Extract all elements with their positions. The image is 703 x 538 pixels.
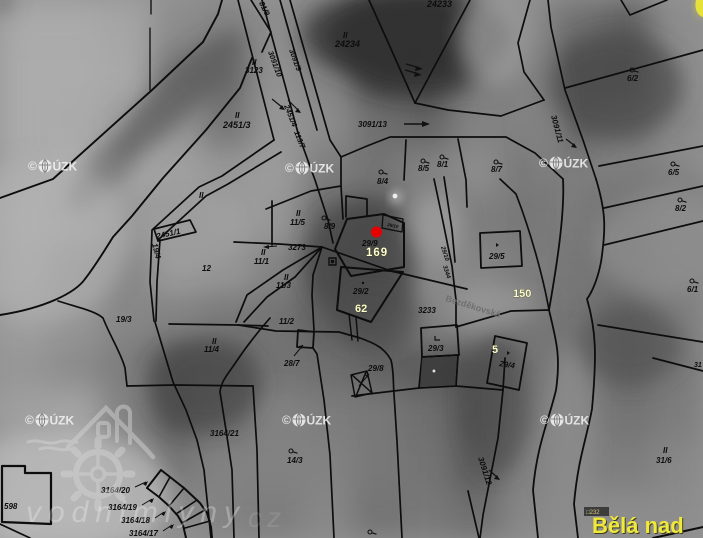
svg-text:19/3: 19/3 (116, 315, 132, 324)
svg-text:29/2: 29/2 (352, 287, 369, 296)
svg-text:11/3: 11/3 (276, 281, 292, 290)
svg-text:II: II (235, 111, 240, 120)
svg-text:8/7: 8/7 (491, 165, 503, 174)
svg-text:II: II (284, 273, 289, 282)
svg-text:3091/13: 3091/13 (358, 120, 387, 129)
svg-text:6/2: 6/2 (627, 74, 639, 83)
svg-text:11/4: 11/4 (204, 345, 220, 354)
svg-text:24233: 24233 (426, 0, 452, 9)
svg-text:vodnimlyny: vodnimlyny (26, 496, 246, 529)
svg-text:3164/21: 3164/21 (210, 429, 239, 438)
svg-text:8/9: 8/9 (324, 222, 336, 231)
svg-text:6/1: 6/1 (687, 285, 699, 294)
svg-text:11/2: 11/2 (279, 317, 295, 326)
svg-text:II: II (212, 337, 217, 346)
svg-text:29/5: 29/5 (488, 252, 505, 261)
svg-text:24234: 24234 (334, 39, 360, 49)
svg-text:3164/17: 3164/17 (129, 529, 158, 538)
svg-text:62: 62 (355, 303, 367, 315)
svg-text:6/5: 6/5 (668, 168, 680, 177)
svg-text:8/2: 8/2 (675, 204, 687, 213)
svg-text:II: II (252, 58, 257, 67)
svg-text:3233: 3233 (418, 306, 436, 315)
svg-text:5: 5 (492, 344, 498, 356)
svg-text:cz: cz (248, 502, 286, 533)
svg-text:8/1: 8/1 (437, 160, 449, 169)
svg-text:28/7: 28/7 (283, 359, 300, 368)
svg-text:II: II (199, 191, 204, 200)
svg-text:11/1: 11/1 (254, 257, 270, 266)
svg-text:Bělá nad: Bělá nad (592, 513, 684, 538)
svg-text:169: 169 (366, 247, 388, 259)
svg-text:31: 31 (694, 362, 702, 369)
svg-text:II: II (261, 248, 266, 257)
svg-text:3273: 3273 (288, 243, 306, 252)
svg-text:2451/3: 2451/3 (222, 120, 251, 130)
svg-text:598: 598 (4, 502, 18, 511)
svg-text:II: II (663, 446, 668, 455)
svg-text:8/5: 8/5 (418, 164, 430, 173)
svg-text:150: 150 (513, 288, 531, 300)
svg-text:II: II (343, 31, 348, 40)
svg-text:11/5: 11/5 (290, 218, 306, 227)
svg-text:3123: 3123 (245, 66, 263, 75)
svg-text:8/4: 8/4 (377, 177, 389, 186)
svg-text:14/3: 14/3 (287, 456, 303, 465)
svg-text:29/8: 29/8 (367, 364, 384, 373)
svg-text:29/3: 29/3 (427, 344, 444, 353)
svg-text:31/6: 31/6 (656, 456, 672, 465)
svg-text:II: II (296, 209, 301, 218)
svg-text:12: 12 (202, 264, 211, 273)
